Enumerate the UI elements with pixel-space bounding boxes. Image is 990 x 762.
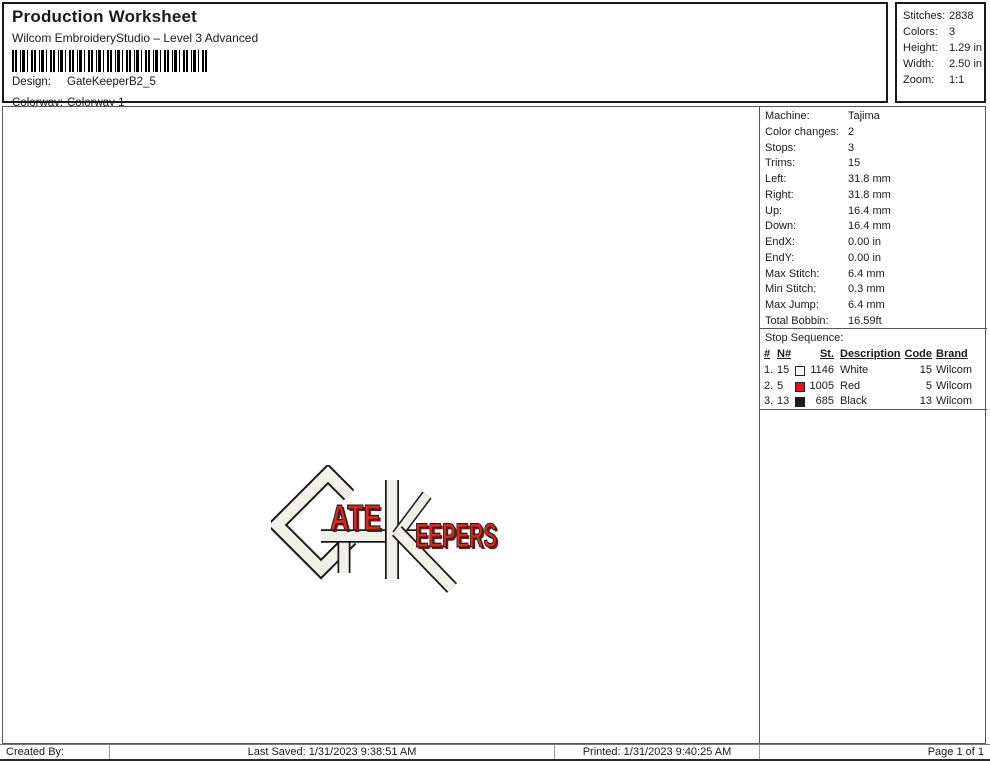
row3-num: 3. [764, 394, 773, 410]
footer-bar: Created By: Last Saved: 1/31/2023 9:38:5… [0, 744, 990, 761]
info-row-right: Right:31.8 mm [760, 188, 987, 204]
info-row-color-changes: Color changes:2 [760, 125, 987, 141]
col-header-code: Code [901, 347, 932, 363]
design-row: Design: GateKeeperB2_5 [12, 76, 886, 93]
row3-brand: Wilcom [936, 394, 972, 410]
endy-label: EndY: [765, 251, 794, 267]
design-preview: ATE ATE EEPERS EEPERS [271, 465, 501, 593]
info-row-min-stitch: Min Stitch:0.3 mm [760, 282, 987, 298]
row2-stitches: 1005 [802, 379, 834, 395]
trims-label: Trims: [765, 156, 795, 172]
logo-word-ate: ATE [330, 497, 381, 538]
up-label: Up: [765, 204, 782, 220]
endx-label: EndX: [765, 235, 795, 251]
info-row-down: Down:16.4 mm [760, 219, 987, 235]
max-stitch-label: Max Stitch: [765, 267, 819, 283]
info-row-max-jump: Max Jump:6.4 mm [760, 298, 987, 314]
printed-cell: Printed: 1/31/2023 9:40:25 AM [555, 745, 760, 759]
row3-stitches: 685 [802, 394, 834, 410]
left-label: Left: [765, 172, 786, 188]
gatekeepers-logo: ATE ATE EEPERS EEPERS [271, 465, 501, 593]
color-changes-label: Color changes: [765, 125, 839, 141]
page-number-cell: Page 1 of 1 [760, 745, 990, 759]
down-value: 16.4 mm [848, 219, 891, 235]
zoom-value: 1:1 [949, 72, 964, 88]
info-row-machine: Machine:Tajima [760, 109, 987, 125]
summary-row-height: Height: 1.29 in [897, 40, 984, 56]
row3-description: Black [840, 394, 867, 410]
stitches-value: 2838 [949, 8, 973, 24]
min-stitch-value: 0.3 mm [848, 282, 885, 298]
stops-label: Stops: [765, 141, 796, 157]
stop-sequence-table: # N# St. Description Code Brand 1. 15 11… [760, 347, 987, 410]
summary-row-width: Width: 2.50 in [897, 56, 984, 72]
info-row-stops: Stops:3 [760, 141, 987, 157]
machine-label: Machine: [765, 109, 810, 125]
last-saved-cell: Last Saved: 1/31/2023 9:38:51 AM [110, 745, 555, 759]
color-changes-value: 2 [848, 125, 854, 141]
main-area: ATE ATE EEPERS EEPERS Machine:Tajima Col… [2, 106, 986, 744]
design-value: GateKeeperB2_5 [67, 76, 156, 88]
endy-value: 0.00 in [848, 251, 881, 267]
machine-value: Tajima [848, 109, 880, 125]
stop-sequence-title: Stop Sequence: [765, 330, 843, 346]
down-label: Down: [765, 219, 796, 235]
stitches-label: Stitches: [903, 8, 945, 24]
endx-value: 0.00 in [848, 235, 881, 251]
height-value: 1.29 in [949, 40, 982, 56]
info-row-trims: Trims:15 [760, 156, 987, 172]
summary-box: Stitches: 2838 Colors: 3 Height: 1.29 in… [895, 2, 986, 103]
info-row-max-stitch: Max Stitch:6.4 mm [760, 267, 987, 283]
width-label: Width: [903, 56, 934, 72]
max-jump-label: Max Jump: [765, 298, 819, 314]
row1-description: White [840, 363, 868, 379]
row3-needle: 13 [777, 394, 789, 410]
right-label: Right: [765, 188, 794, 204]
up-value: 16.4 mm [848, 204, 891, 220]
max-jump-value: 6.4 mm [848, 298, 885, 314]
row2-needle: 5 [777, 379, 783, 395]
stop-sequence-header-row: # N# St. Description Code Brand [760, 347, 987, 363]
page-title: Production Worksheet [12, 7, 886, 27]
stop-sequence-row-1: 1. 15 1146 White 15 Wilcom [760, 363, 987, 379]
width-value: 2.50 in [949, 56, 982, 72]
row1-stitches: 1146 [802, 363, 834, 379]
row2-description: Red [840, 379, 860, 395]
col-header-brand: Brand [936, 347, 968, 363]
info-row-endy: EndY:0.00 in [760, 251, 987, 267]
col-header-stitches: St. [802, 347, 834, 363]
stops-value: 3 [848, 141, 854, 157]
max-stitch-value: 6.4 mm [848, 267, 885, 283]
col-header-needle: N# [777, 347, 791, 363]
col-header-description: Description [840, 347, 901, 363]
colors-value: 3 [949, 24, 955, 40]
row1-code: 15 [901, 363, 932, 379]
row3-code: 13 [901, 394, 932, 410]
info-row-up: Up:16.4 mm [760, 204, 987, 220]
design-label: Design: [12, 76, 51, 88]
machine-info-panel: Machine:Tajima Color changes:2 Stops:3 T… [760, 107, 987, 745]
row1-needle: 15 [777, 363, 789, 379]
row2-code: 5 [901, 379, 932, 395]
zoom-label: Zoom: [903, 72, 934, 88]
stop-sequence-row-3: 3. 13 685 Black 13 Wilcom [760, 394, 987, 410]
summary-row-colors: Colors: 3 [897, 24, 984, 40]
left-value: 31.8 mm [848, 172, 891, 188]
right-value: 31.8 mm [848, 188, 891, 204]
height-label: Height: [903, 40, 938, 56]
production-worksheet-page: Production Worksheet Wilcom EmbroiderySt… [0, 0, 990, 762]
panel-separator-top [760, 328, 987, 329]
col-header-num: # [764, 347, 770, 363]
colors-label: Colors: [903, 24, 938, 40]
stop-sequence-row-2: 2. 5 1005 Red 5 Wilcom [760, 379, 987, 395]
info-row-endx: EndX:0.00 in [760, 235, 987, 251]
header-box: Production Worksheet Wilcom EmbroiderySt… [2, 2, 888, 103]
min-stitch-label: Min Stitch: [765, 282, 816, 298]
panel-separator-bottom [760, 409, 987, 410]
logo-word-eepers: EEPERS [415, 517, 497, 555]
info-row-left: Left:31.8 mm [760, 172, 987, 188]
row1-brand: Wilcom [936, 363, 972, 379]
trims-value: 15 [848, 156, 860, 172]
summary-row-stitches: Stitches: 2838 [897, 8, 984, 24]
design-barcode-icon [12, 50, 208, 72]
row2-num: 2. [764, 379, 773, 395]
row1-num: 1. [764, 363, 773, 379]
row2-brand: Wilcom [936, 379, 972, 395]
summary-row-zoom: Zoom: 1:1 [897, 72, 984, 88]
application-subtitle: Wilcom EmbroideryStudio – Level 3 Advanc… [12, 31, 886, 45]
created-by-cell: Created By: [0, 745, 110, 759]
